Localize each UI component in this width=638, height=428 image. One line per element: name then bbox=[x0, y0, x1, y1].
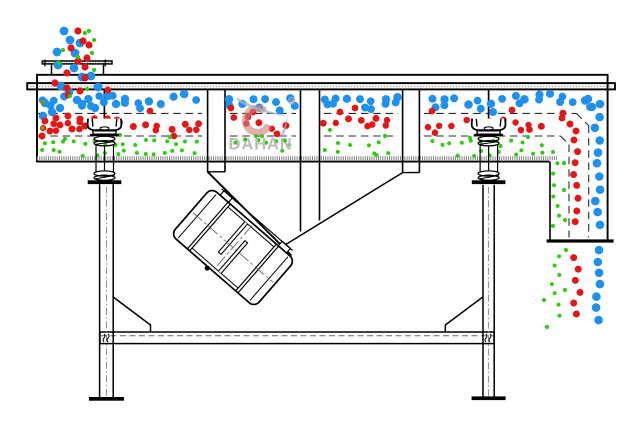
svg-text:DAHAN: DAHAN bbox=[229, 136, 294, 154]
svg-text:R: R bbox=[290, 99, 294, 105]
